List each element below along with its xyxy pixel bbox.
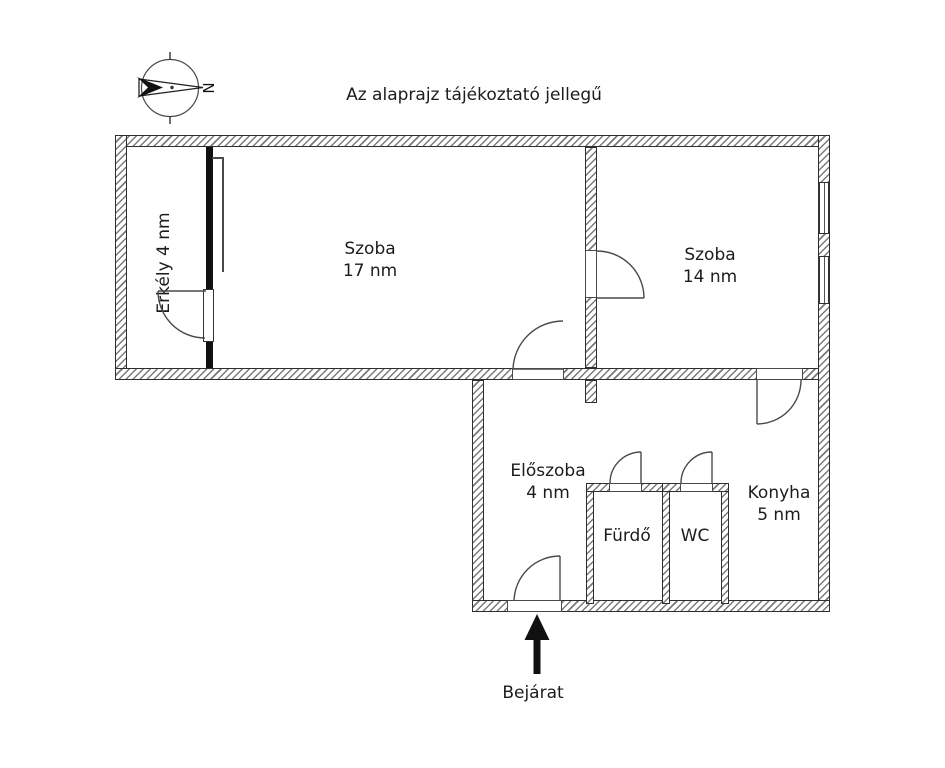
room-name: Konyha — [748, 482, 811, 504]
door-opening-wc — [680, 483, 713, 492]
wall-top — [115, 135, 830, 147]
wall-middle-horizontal — [115, 368, 830, 380]
room-area: 14 nm — [683, 266, 737, 288]
door-arc-wc — [681, 452, 712, 483]
fixture-line-vertical — [222, 157, 224, 272]
room-label-furdo: Fürdő — [603, 525, 651, 547]
door-opening-szoba17-szoba14 — [585, 250, 597, 298]
room-label-szoba-17: Szoba 17 nm — [343, 238, 397, 282]
window-mullion — [824, 257, 825, 303]
door-opening-furdo — [609, 483, 642, 492]
wall-lower-left — [472, 380, 484, 612]
door-opening-konyha — [756, 368, 803, 380]
compass-icon: N — [137, 52, 217, 124]
room-name: Szoba — [343, 238, 397, 260]
wall-right-upper — [818, 135, 830, 183]
room-label-eloszoba: Előszoba 4 nm — [510, 460, 585, 504]
door-arc-konyha — [757, 380, 801, 424]
wall-furdo-wc-divider — [662, 483, 670, 604]
wall-wc-right — [721, 483, 729, 604]
compass-needle-tail — [137, 77, 163, 98]
window-szoba14-upper — [818, 183, 830, 233]
door-arc-szoba17 — [513, 321, 563, 369]
room-label-wc: WC — [681, 525, 710, 547]
wall-right-lower — [818, 303, 830, 612]
entrance-label: Bejárat — [502, 682, 563, 704]
plan-disclaimer-note: Az alaprajz tájékoztató jellegű — [346, 84, 602, 106]
window-mullion — [824, 183, 825, 233]
wall-stub-eloszoba — [585, 380, 597, 403]
wall-left — [115, 135, 127, 380]
compass-north-letter: N — [199, 82, 217, 93]
door-arc-furdo — [610, 452, 641, 483]
compass-circle — [142, 60, 199, 117]
room-label-erkely: Erkély 4 nm — [153, 212, 175, 313]
entrance-arrow-icon — [525, 614, 550, 674]
room-name: Előszoba — [510, 460, 585, 482]
room-name: Szoba — [683, 244, 737, 266]
room-area: 4 nm — [510, 482, 585, 504]
door-opening-szoba17-eloszoba — [512, 368, 564, 380]
room-area: 5 nm — [748, 504, 811, 526]
balcony-door-frame — [203, 289, 214, 342]
window-szoba14-lower — [818, 257, 830, 303]
door-arc-szoba14 — [597, 251, 644, 298]
wall-right-between-windows — [818, 233, 830, 257]
room-label-szoba-14: Szoba 14 nm — [683, 244, 737, 288]
compass-needle — [139, 79, 203, 96]
room-label-konyha: Konyha 5 nm — [748, 482, 811, 526]
room-area: 17 nm — [343, 260, 397, 282]
wall-furdo-left — [586, 483, 594, 604]
door-opening-entrance — [507, 600, 562, 612]
floor-plan-page: Az alaprajz tájékoztató jellegű Erkély 4… — [0, 0, 945, 768]
door-arc-entrance — [514, 556, 560, 601]
compass-center-dot — [170, 86, 173, 89]
